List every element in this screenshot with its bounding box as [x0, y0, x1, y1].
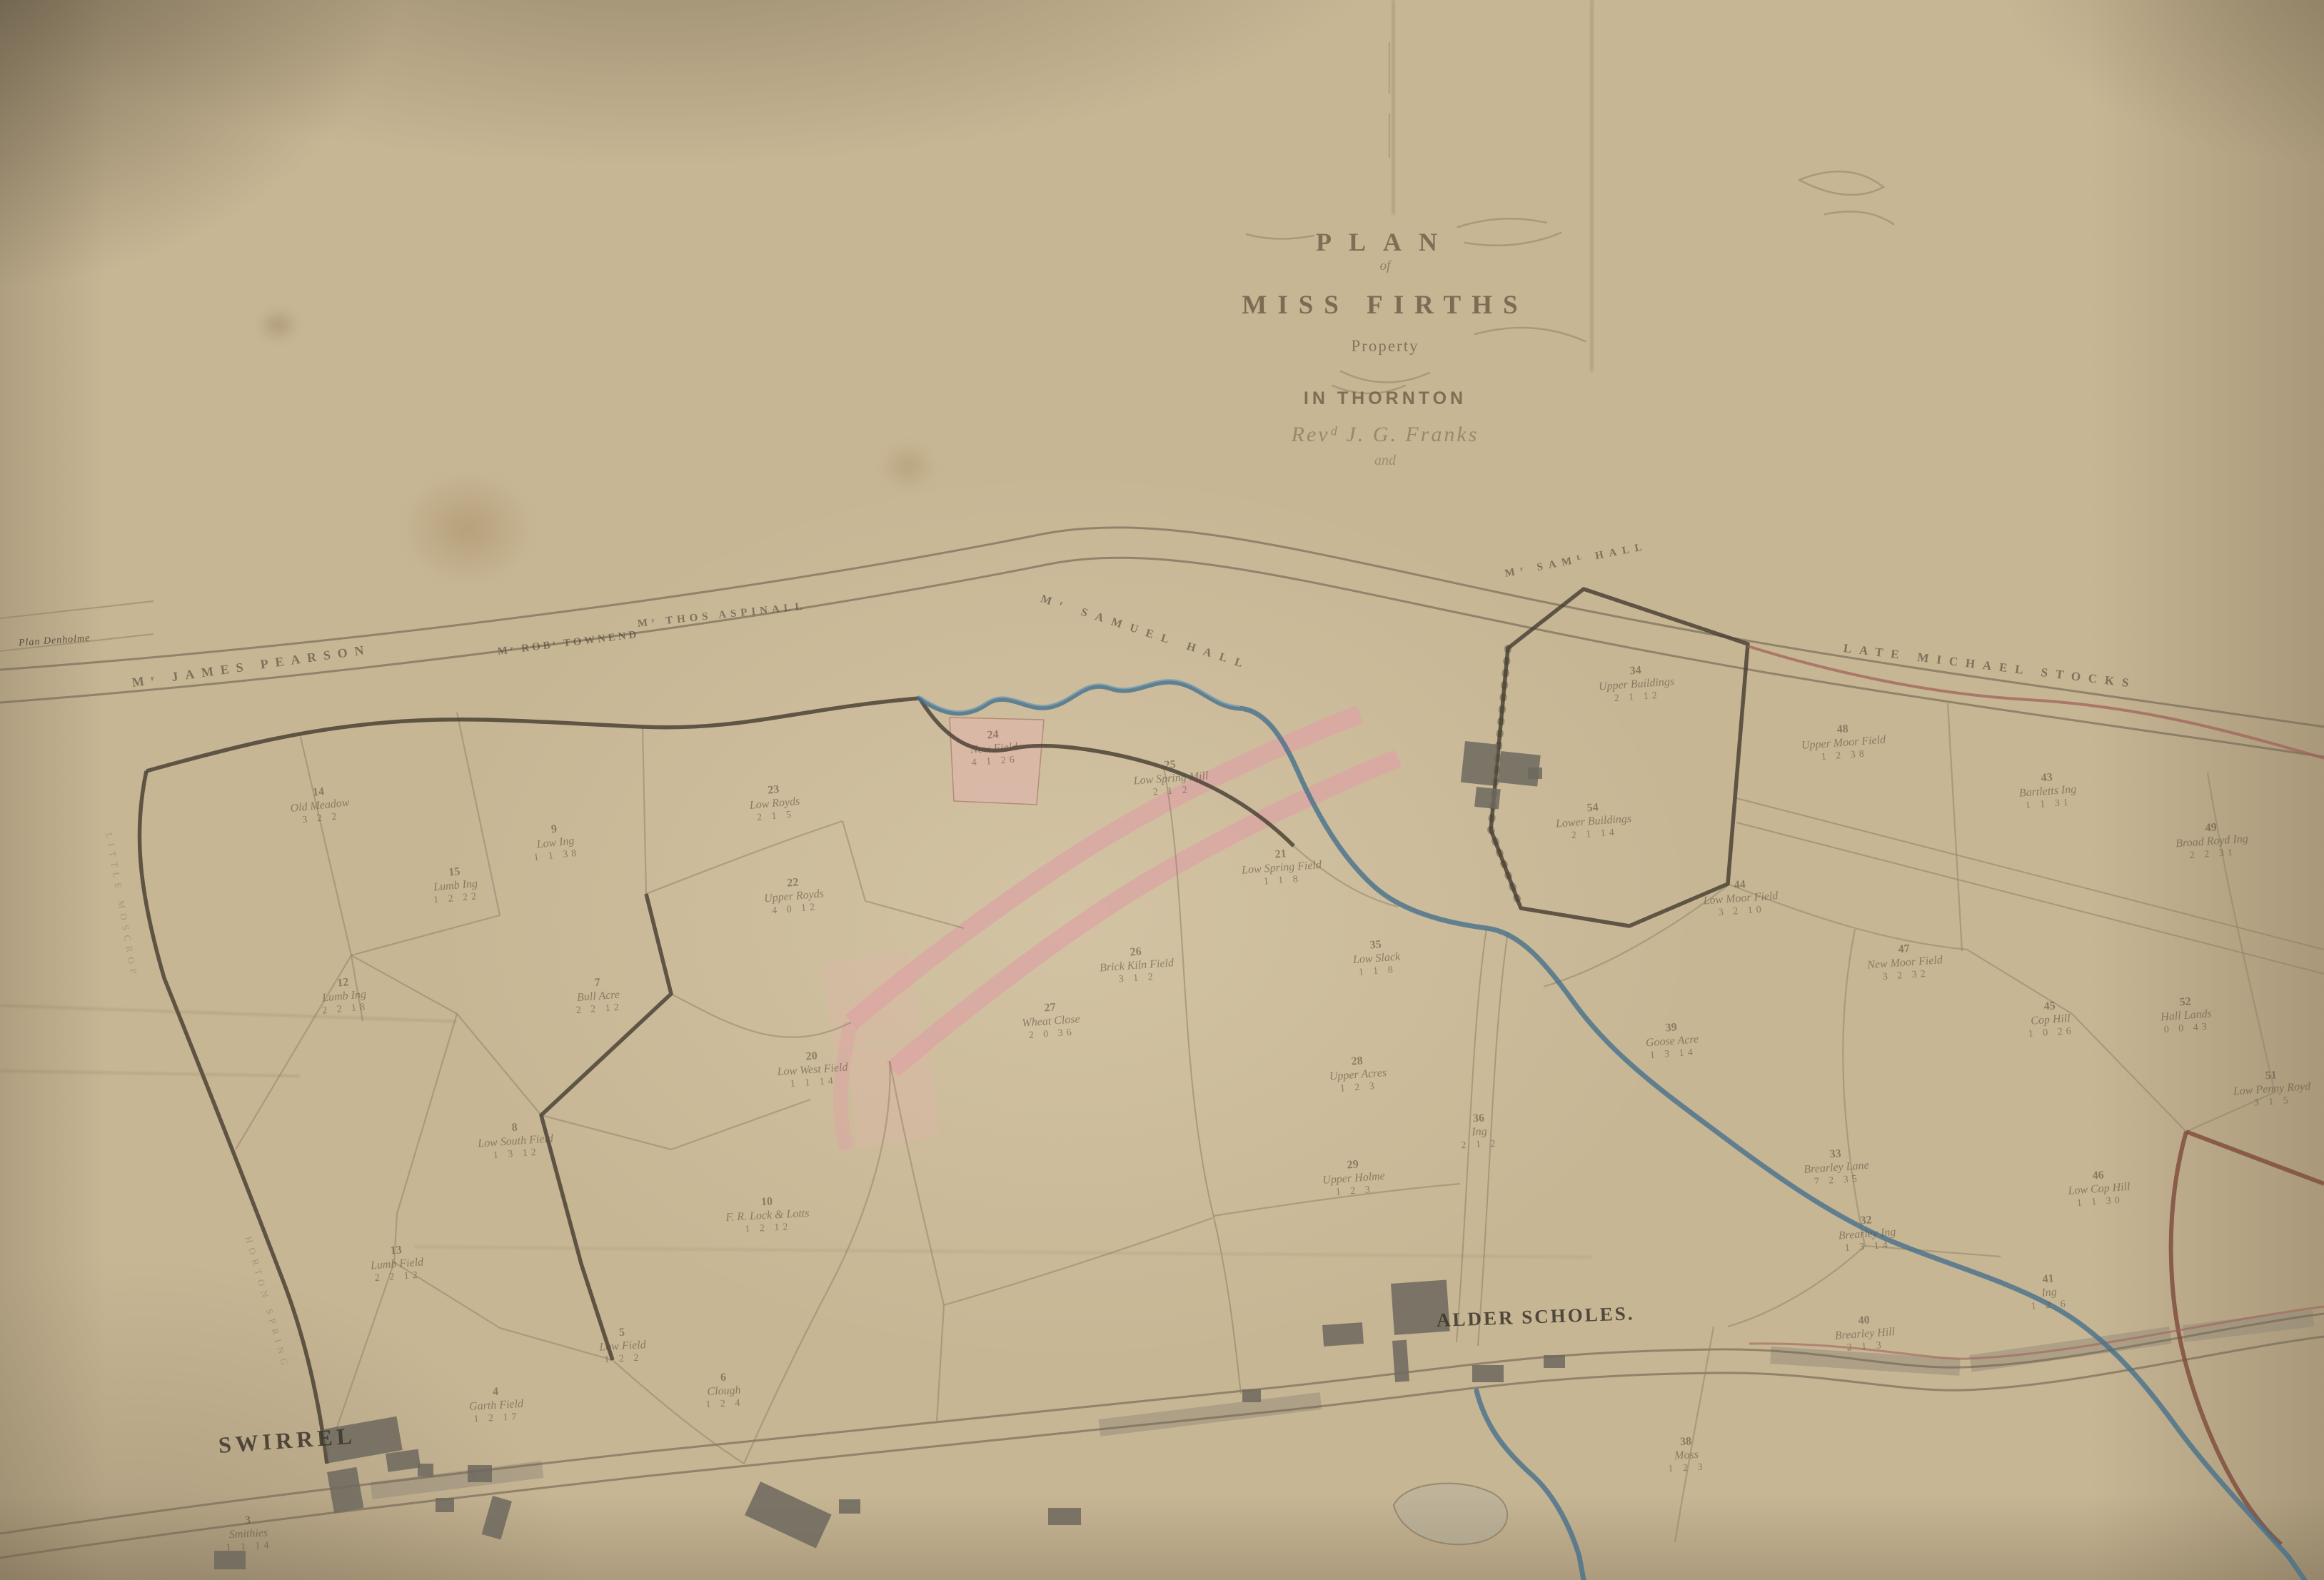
estate-map-photo: PLAN of MISS FIRTHS Property IN THORNTON…: [0, 0, 2324, 1580]
plot-label: 36Ing2 1 2: [1459, 1112, 1499, 1152]
plot-label: 33Brearley Lane7 2 35: [1803, 1146, 1871, 1189]
place-name-label: SWIRREL: [218, 1423, 357, 1459]
plot-label: 27Wheat Close2 0 36: [1021, 1000, 1082, 1042]
adjoining-owner-label: Mʳ SAMᴸ HALL: [1504, 540, 1649, 580]
labels-layer: 14Old Meadow3 2 29Low Ing1 1 3815Lumb In…: [0, 0, 2324, 1580]
plot-label: 35Low Slack1 1 8: [1352, 937, 1402, 980]
plot-label: 5Low Field1 2 2: [598, 1325, 647, 1367]
plot-label: 45Cop Hill1 0 26: [2026, 999, 2076, 1041]
plot-label: 49Broad Royd Ing2 2 31: [2174, 819, 2249, 862]
plot-label: 8Low South Field1 3 12: [476, 1119, 554, 1163]
plot-label: 40Brearley Hill2 1 3: [1833, 1312, 1896, 1355]
plot-label: 43Bartletts Ing1 1 31: [2018, 770, 2078, 812]
plot-label: 26Brick Kiln Field3 1 2: [1098, 943, 1175, 987]
plot-label: 22Upper Royds4 0 12: [763, 874, 825, 917]
plot-label: 47New Moor Field3 2 32: [1866, 940, 1943, 985]
plot-label: 3Smithies1 1 14: [224, 1513, 273, 1554]
plot-label: 14Old Meadow3 2 2: [288, 783, 351, 828]
plot-label: 6Clough1 2 4: [704, 1371, 744, 1412]
plot-label: 28Upper Acres1 2 3: [1328, 1053, 1388, 1096]
plot-label: 38Moss1 2 3: [1666, 1435, 1706, 1476]
plot-label: 54Lower Buildings2 1 14: [1554, 799, 1633, 843]
vertical-lane-label: LITTLE MOSCROP: [103, 832, 140, 980]
adjoining-owner-label: Mʳ JAMES PEARSON: [131, 642, 372, 690]
plot-label: 41Ing1 2 6: [2029, 1272, 2070, 1313]
plot-label: 39Goose Acre1 3 14: [1644, 1020, 1700, 1062]
plot-label: 23Low Royds2 1 5: [748, 782, 801, 825]
plot-label: 44Low Moor Field3 2 10: [1702, 876, 1779, 920]
plot-label: 48Upper Moor Field1 2 38: [1800, 720, 1887, 765]
plot-label: 12Lumb Ing2 2 18: [319, 975, 368, 1017]
plot-label: 20Low West Field1 1 14: [776, 1047, 850, 1091]
plot-label: 4Garth Field1 2 17: [468, 1384, 525, 1426]
plot-label: 10F. R. Lock & Lotts1 2 12: [725, 1194, 810, 1237]
plot-label: 9Low Ing1 1 38: [530, 821, 580, 865]
plot-label: 52Hall Lands0 0 43: [2159, 994, 2213, 1036]
place-name-label: ALDER SCHOLES.: [1436, 1302, 1634, 1332]
plot-label: 32Brearley Ing1 3 14: [1837, 1212, 1897, 1255]
adjoining-owner-label: Mʳ SAMUEL HALL: [1039, 593, 1252, 673]
plot-label: 24New Field4 1 26: [969, 728, 1019, 770]
plot-label: 51Low Penny Royd3 1 5: [2232, 1067, 2312, 1111]
adjoining-owner-label: Mʳ THOS ASPINALL: [637, 600, 807, 630]
plot-label: 34Upper Buildings2 1 12: [1597, 662, 1676, 706]
vertical-lane-label: HORTON SPRING: [243, 1235, 292, 1372]
plot-label: 13Lumb Field2 2 12: [369, 1242, 425, 1284]
plot-label: 25Low Spring Mill2 1 2: [1132, 756, 1209, 800]
plot-label: 21Low Spring Field1 1 8: [1240, 845, 1323, 890]
plot-label: 15Lumb Ing1 2 22: [431, 864, 480, 907]
adjoining-owner-label: Mʳ ROBᵗ TOWNEND: [497, 629, 640, 658]
adjoining-owner-label: LATE MICHAEL STOCKS: [1843, 641, 2138, 691]
plot-label: 29Upper Holme1 2 3: [1321, 1157, 1386, 1199]
plot-label: 7Bull Acre2 2 12: [574, 975, 623, 1017]
plot-label: 46Low Cop Hill1 1 30: [2067, 1167, 2132, 1210]
